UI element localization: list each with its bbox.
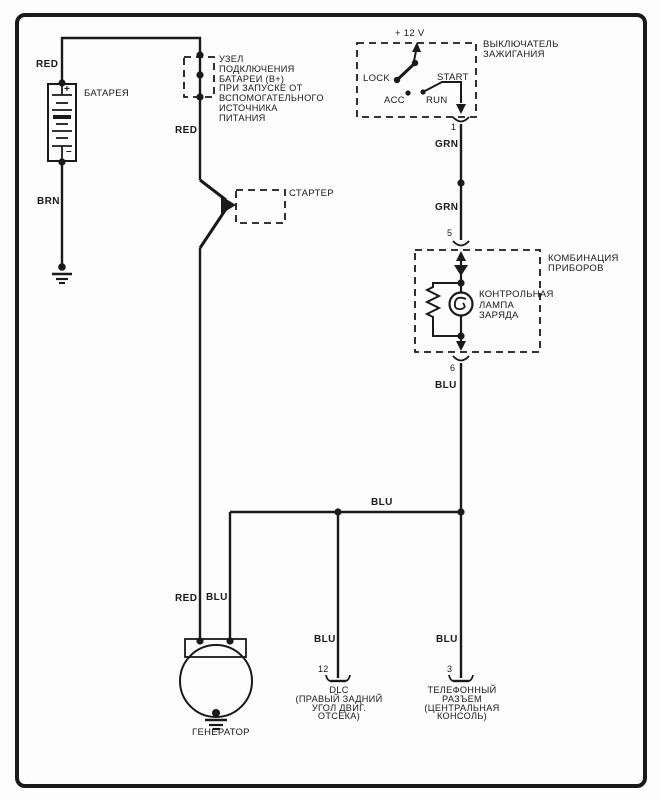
generator-label: ГЕНЕРАТОР <box>192 728 250 738</box>
switch-pos-run: RUN <box>426 96 447 106</box>
wire-label-grn-2: GRN <box>435 203 458 213</box>
ground-icon-generator <box>205 709 227 729</box>
charge-lamp-circuit <box>427 258 473 351</box>
ground-icon-battery <box>52 263 72 283</box>
wire-label-blu-dlc: BLU <box>314 635 336 645</box>
wire-red-top <box>62 38 200 180</box>
dlc-label: DLC (ПРАВЫЙ ЗАДНИЙ УГОЛ ДВИГ. ОТСЕКА) <box>294 686 384 721</box>
wire-label-blu-cluster: BLU <box>435 381 457 391</box>
jumper-note: УЗЕЛ ПОДКЛЮЧЕНИЯ БАТАРЕИ (B+) ПРИ ЗАПУСК… <box>219 55 337 124</box>
page-border <box>17 15 645 786</box>
wire-label-grn-1: GRN <box>435 140 458 150</box>
switch-pos-acc: ACC <box>384 96 405 106</box>
wire-label-blu-phone: BLU <box>436 635 458 645</box>
pin-12-label: 12 <box>318 665 329 675</box>
ignition-switch-title: ВЫКЛЮЧАТЕЛЬ ЗАЖИГАНИЯ <box>483 40 559 60</box>
wire-label-blu-bus: BLU <box>371 498 393 508</box>
starter-tap-wire <box>200 180 236 248</box>
pin-1-label: 1 <box>451 123 456 133</box>
pin-6-label: 6 <box>450 364 455 374</box>
connector-pin6-icon <box>453 356 469 361</box>
wiring-diagram-charging-system: RED БАТАРЕЯ + – УЗЕЛ ПОДКЛЮЧЕНИЯ БАТАРЕИ… <box>0 0 660 800</box>
starter-box <box>236 190 285 223</box>
starter-label: СТАРТЕР <box>289 189 334 199</box>
wire-grn <box>457 124 464 240</box>
battery-plus-sign: + <box>64 85 70 95</box>
wire-label-red-gen: RED <box>175 594 197 604</box>
supply-12v-label: + 12 V <box>395 29 425 39</box>
wire-label-red-battery: RED <box>36 60 58 70</box>
switch-pos-start: START <box>437 73 469 83</box>
generator-symbol <box>180 637 252 717</box>
charge-lamp-label: КОНТРОЛЬНАЯ ЛАМПА ЗАРЯДА <box>479 290 554 322</box>
charge-lamp-icon <box>450 293 473 316</box>
pin-5-label: 5 <box>447 229 452 239</box>
wire-label-blu-gen: BLU <box>206 593 228 603</box>
battery-minus-sign: – <box>66 147 72 157</box>
pin-3-label: 3 <box>447 665 452 675</box>
switch-pos-lock: LOCK <box>363 74 390 84</box>
wire-label-brn: BRN <box>37 197 60 207</box>
cluster-title: КОМБИНАЦИЯ ПРИБОРОВ <box>548 254 619 274</box>
wire-blu <box>230 363 465 678</box>
wire-label-red-main: RED <box>175 126 197 136</box>
battery-label: БАТАРЕЯ <box>84 89 129 99</box>
phone-connector-label: ТЕЛЕФОННЫЙ РАЗЪЕМ (ЦЕНТРАЛЬНАЯ КОНСОЛЬ) <box>417 686 507 721</box>
diode-icon <box>454 265 468 276</box>
